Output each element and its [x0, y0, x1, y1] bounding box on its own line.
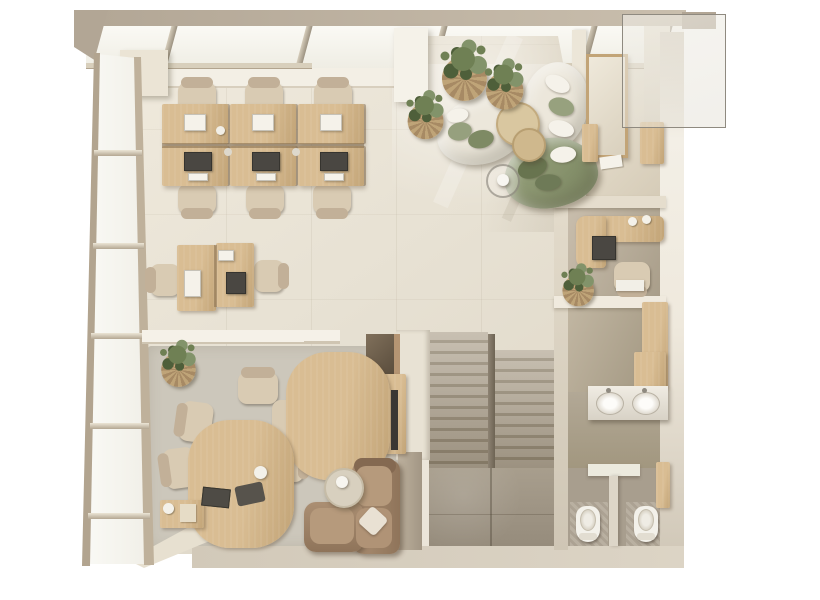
plant-foliage	[494, 65, 514, 85]
meeting-chair	[238, 372, 278, 404]
desk-row-divider	[162, 143, 364, 148]
desk-vase	[216, 126, 225, 135]
monitor	[592, 236, 616, 260]
task-chair	[178, 184, 216, 214]
meeting-table-lobe	[188, 420, 294, 548]
plant-foliage	[569, 269, 586, 286]
desk-item	[218, 250, 234, 261]
sofa-cushion-green	[546, 94, 576, 118]
monitor-white	[184, 270, 201, 297]
keyboard	[324, 173, 344, 181]
ball-lamp	[497, 174, 509, 186]
wall-shelf	[582, 124, 598, 162]
task-chair	[150, 264, 180, 296]
toilet	[634, 506, 658, 542]
toilet	[576, 506, 600, 542]
pouf-side-table	[324, 468, 364, 508]
monitor	[184, 152, 212, 171]
sofa-pillow-white	[542, 71, 572, 97]
window-transom	[90, 423, 149, 429]
stair-flight-right	[494, 350, 556, 470]
desk-gap-shadow	[214, 245, 217, 307]
floorplan-render	[0, 0, 820, 600]
sink-basin	[632, 392, 660, 415]
stall-door	[656, 462, 670, 508]
shelf-item	[616, 280, 644, 291]
task-chair	[254, 260, 284, 292]
monitor	[252, 152, 280, 171]
landing-joint-vertical	[490, 468, 492, 546]
task-chair	[246, 184, 284, 214]
stall-partition-post	[609, 476, 618, 546]
stair-flight-left	[428, 332, 488, 468]
faucet	[606, 388, 611, 393]
laptop	[252, 114, 274, 131]
desk-vase	[292, 148, 300, 156]
laptop	[320, 114, 342, 131]
laptop	[184, 114, 206, 131]
potted-plant	[476, 52, 531, 112]
desk-lamp-ball	[254, 466, 267, 479]
desk-vase	[224, 148, 232, 156]
kettle	[163, 503, 174, 514]
stair-divider	[488, 334, 495, 468]
sofa-pillow-white	[549, 145, 577, 164]
laptop-dark	[201, 487, 231, 509]
monitor	[226, 272, 246, 294]
faucet	[642, 388, 647, 393]
frosted-glass-panel	[622, 14, 726, 128]
niche-wood-jamb	[394, 334, 400, 374]
potted-plant	[554, 258, 600, 308]
landing-joint-horizontal	[424, 514, 556, 515]
top-wall-band	[74, 10, 686, 26]
sofa-seat-cushion	[310, 508, 354, 544]
tv-screen	[391, 390, 398, 450]
bottom-wall	[192, 546, 684, 568]
window-transom	[88, 513, 150, 519]
ball-lamp	[336, 476, 348, 488]
wall-cabinet	[634, 352, 666, 388]
sofa-pillow-white	[547, 117, 576, 140]
glazed-wall	[82, 50, 154, 568]
cabinet-box	[180, 504, 196, 522]
monitor	[320, 152, 348, 171]
plant-foliage	[168, 346, 186, 364]
keyboard	[188, 173, 208, 181]
right-rooms-divider-wall	[554, 198, 568, 550]
vanity-counter	[588, 386, 668, 420]
sink-basin	[596, 392, 624, 415]
mug	[628, 217, 637, 226]
stair-landing	[424, 468, 556, 546]
window-transom	[91, 333, 146, 339]
mug	[642, 215, 651, 224]
task-chair	[313, 184, 351, 214]
wall-shelf	[640, 122, 664, 164]
meeting-ledge-wall-stub	[304, 330, 340, 343]
plant-foliage	[451, 47, 475, 71]
window-transom	[93, 243, 144, 249]
roof-mullion	[294, 25, 314, 68]
potted-plant	[152, 334, 203, 389]
keyboard	[256, 173, 276, 181]
coffee-table-small	[512, 128, 546, 162]
stall-partition-shelf	[588, 464, 640, 476]
window-transom	[94, 150, 142, 156]
